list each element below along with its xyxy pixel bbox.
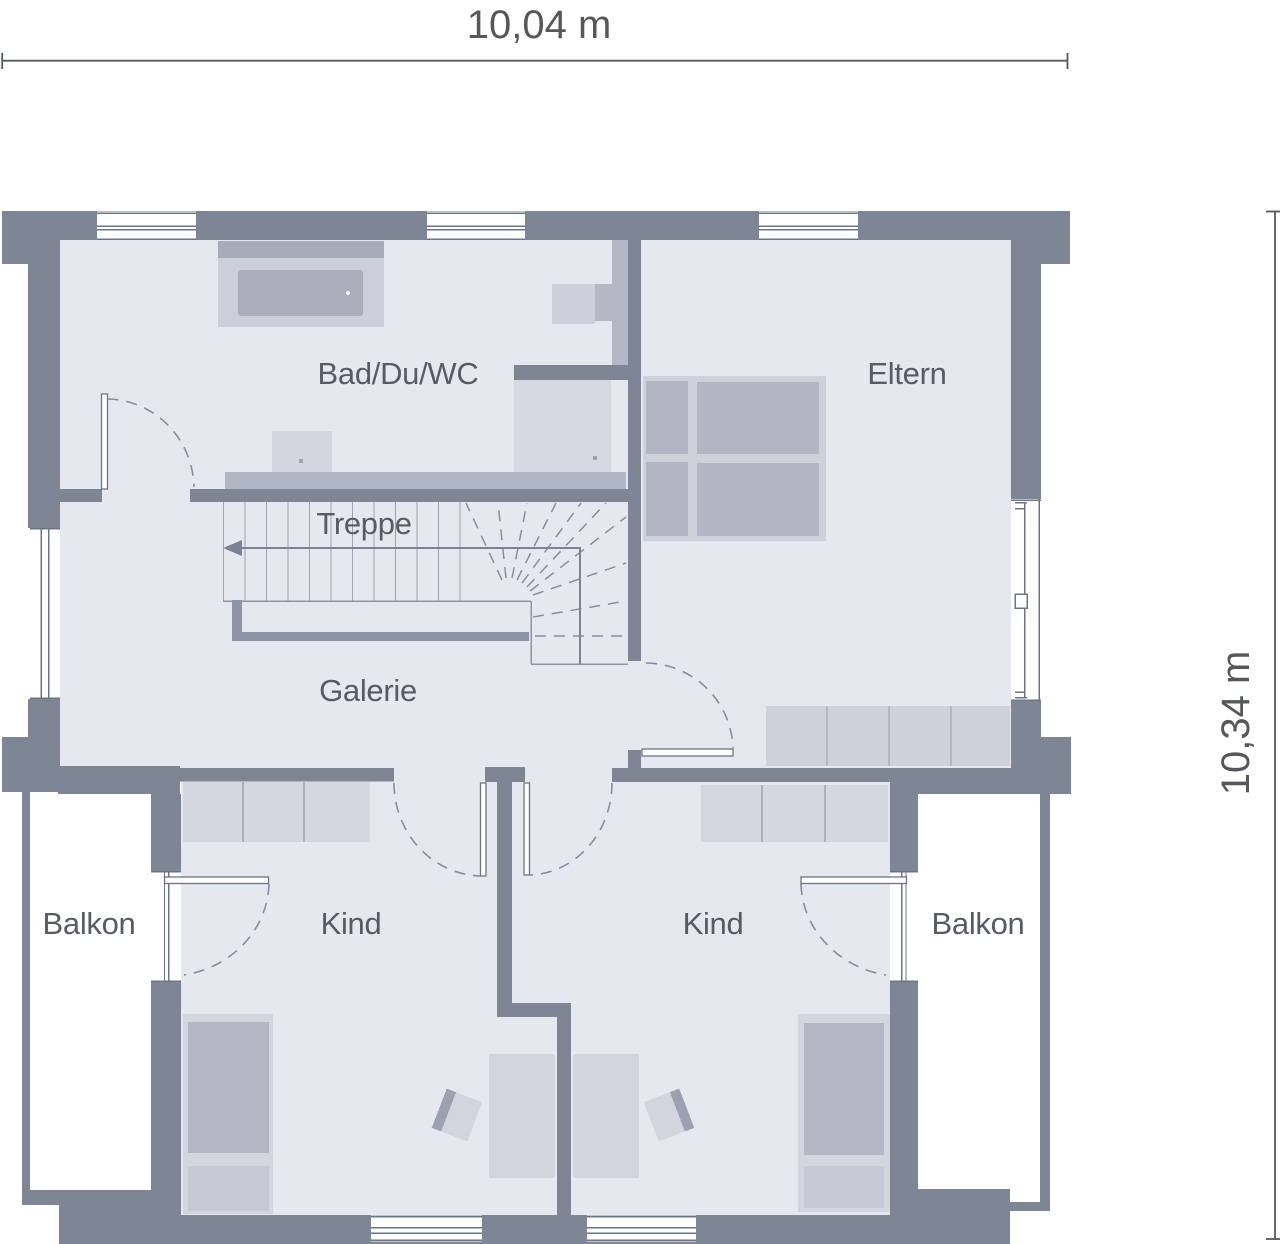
svg-text:Balkon: Balkon — [43, 906, 136, 941]
svg-text:Bad/Du/WC: Bad/Du/WC — [318, 356, 479, 391]
svg-text:Balkon: Balkon — [932, 906, 1025, 941]
svg-text:Treppe: Treppe — [316, 506, 411, 541]
svg-text:10,34 m: 10,34 m — [1214, 651, 1258, 796]
svg-text:10,04 m: 10,04 m — [467, 3, 612, 47]
svg-text:Kind: Kind — [321, 906, 382, 941]
svg-text:Galerie: Galerie — [319, 673, 417, 708]
svg-text:Eltern: Eltern — [867, 356, 946, 391]
svg-text:Kind: Kind — [683, 906, 744, 941]
